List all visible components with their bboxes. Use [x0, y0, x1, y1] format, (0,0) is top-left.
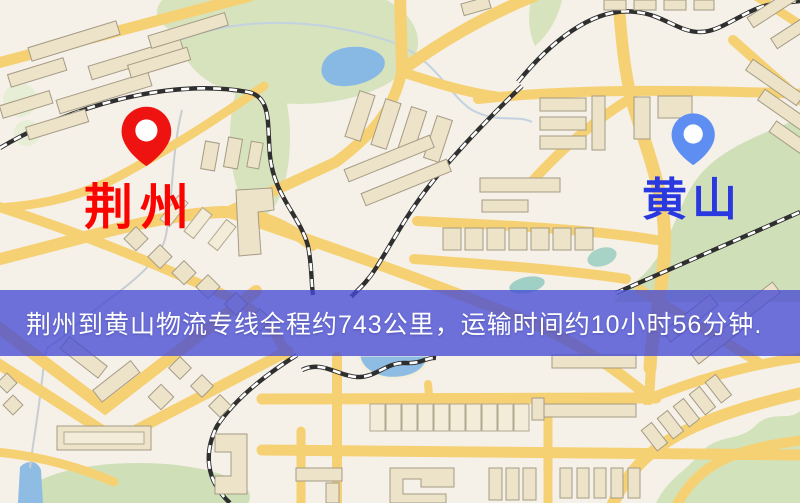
- destination-city-label: 黄山: [642, 177, 742, 222]
- route-info-banner: 荆州到黄山物流专线全程约743公里，运输时间约10小时56分钟.: [0, 290, 800, 356]
- map-canvas[interactable]: [0, 0, 800, 503]
- route-info-text: 荆州到黄山物流专线全程约743公里，运输时间约10小时56分钟.: [0, 305, 762, 341]
- destination-pin-icon[interactable]: [672, 113, 715, 165]
- origin-pin-icon[interactable]: [122, 107, 172, 166]
- origin-city-label: 荆州: [84, 184, 196, 233]
- map-viewport[interactable]: 荆州 黄山 荆州到黄山物流专线全程约743公里，运输时间约10小时56分钟.: [0, 0, 800, 503]
